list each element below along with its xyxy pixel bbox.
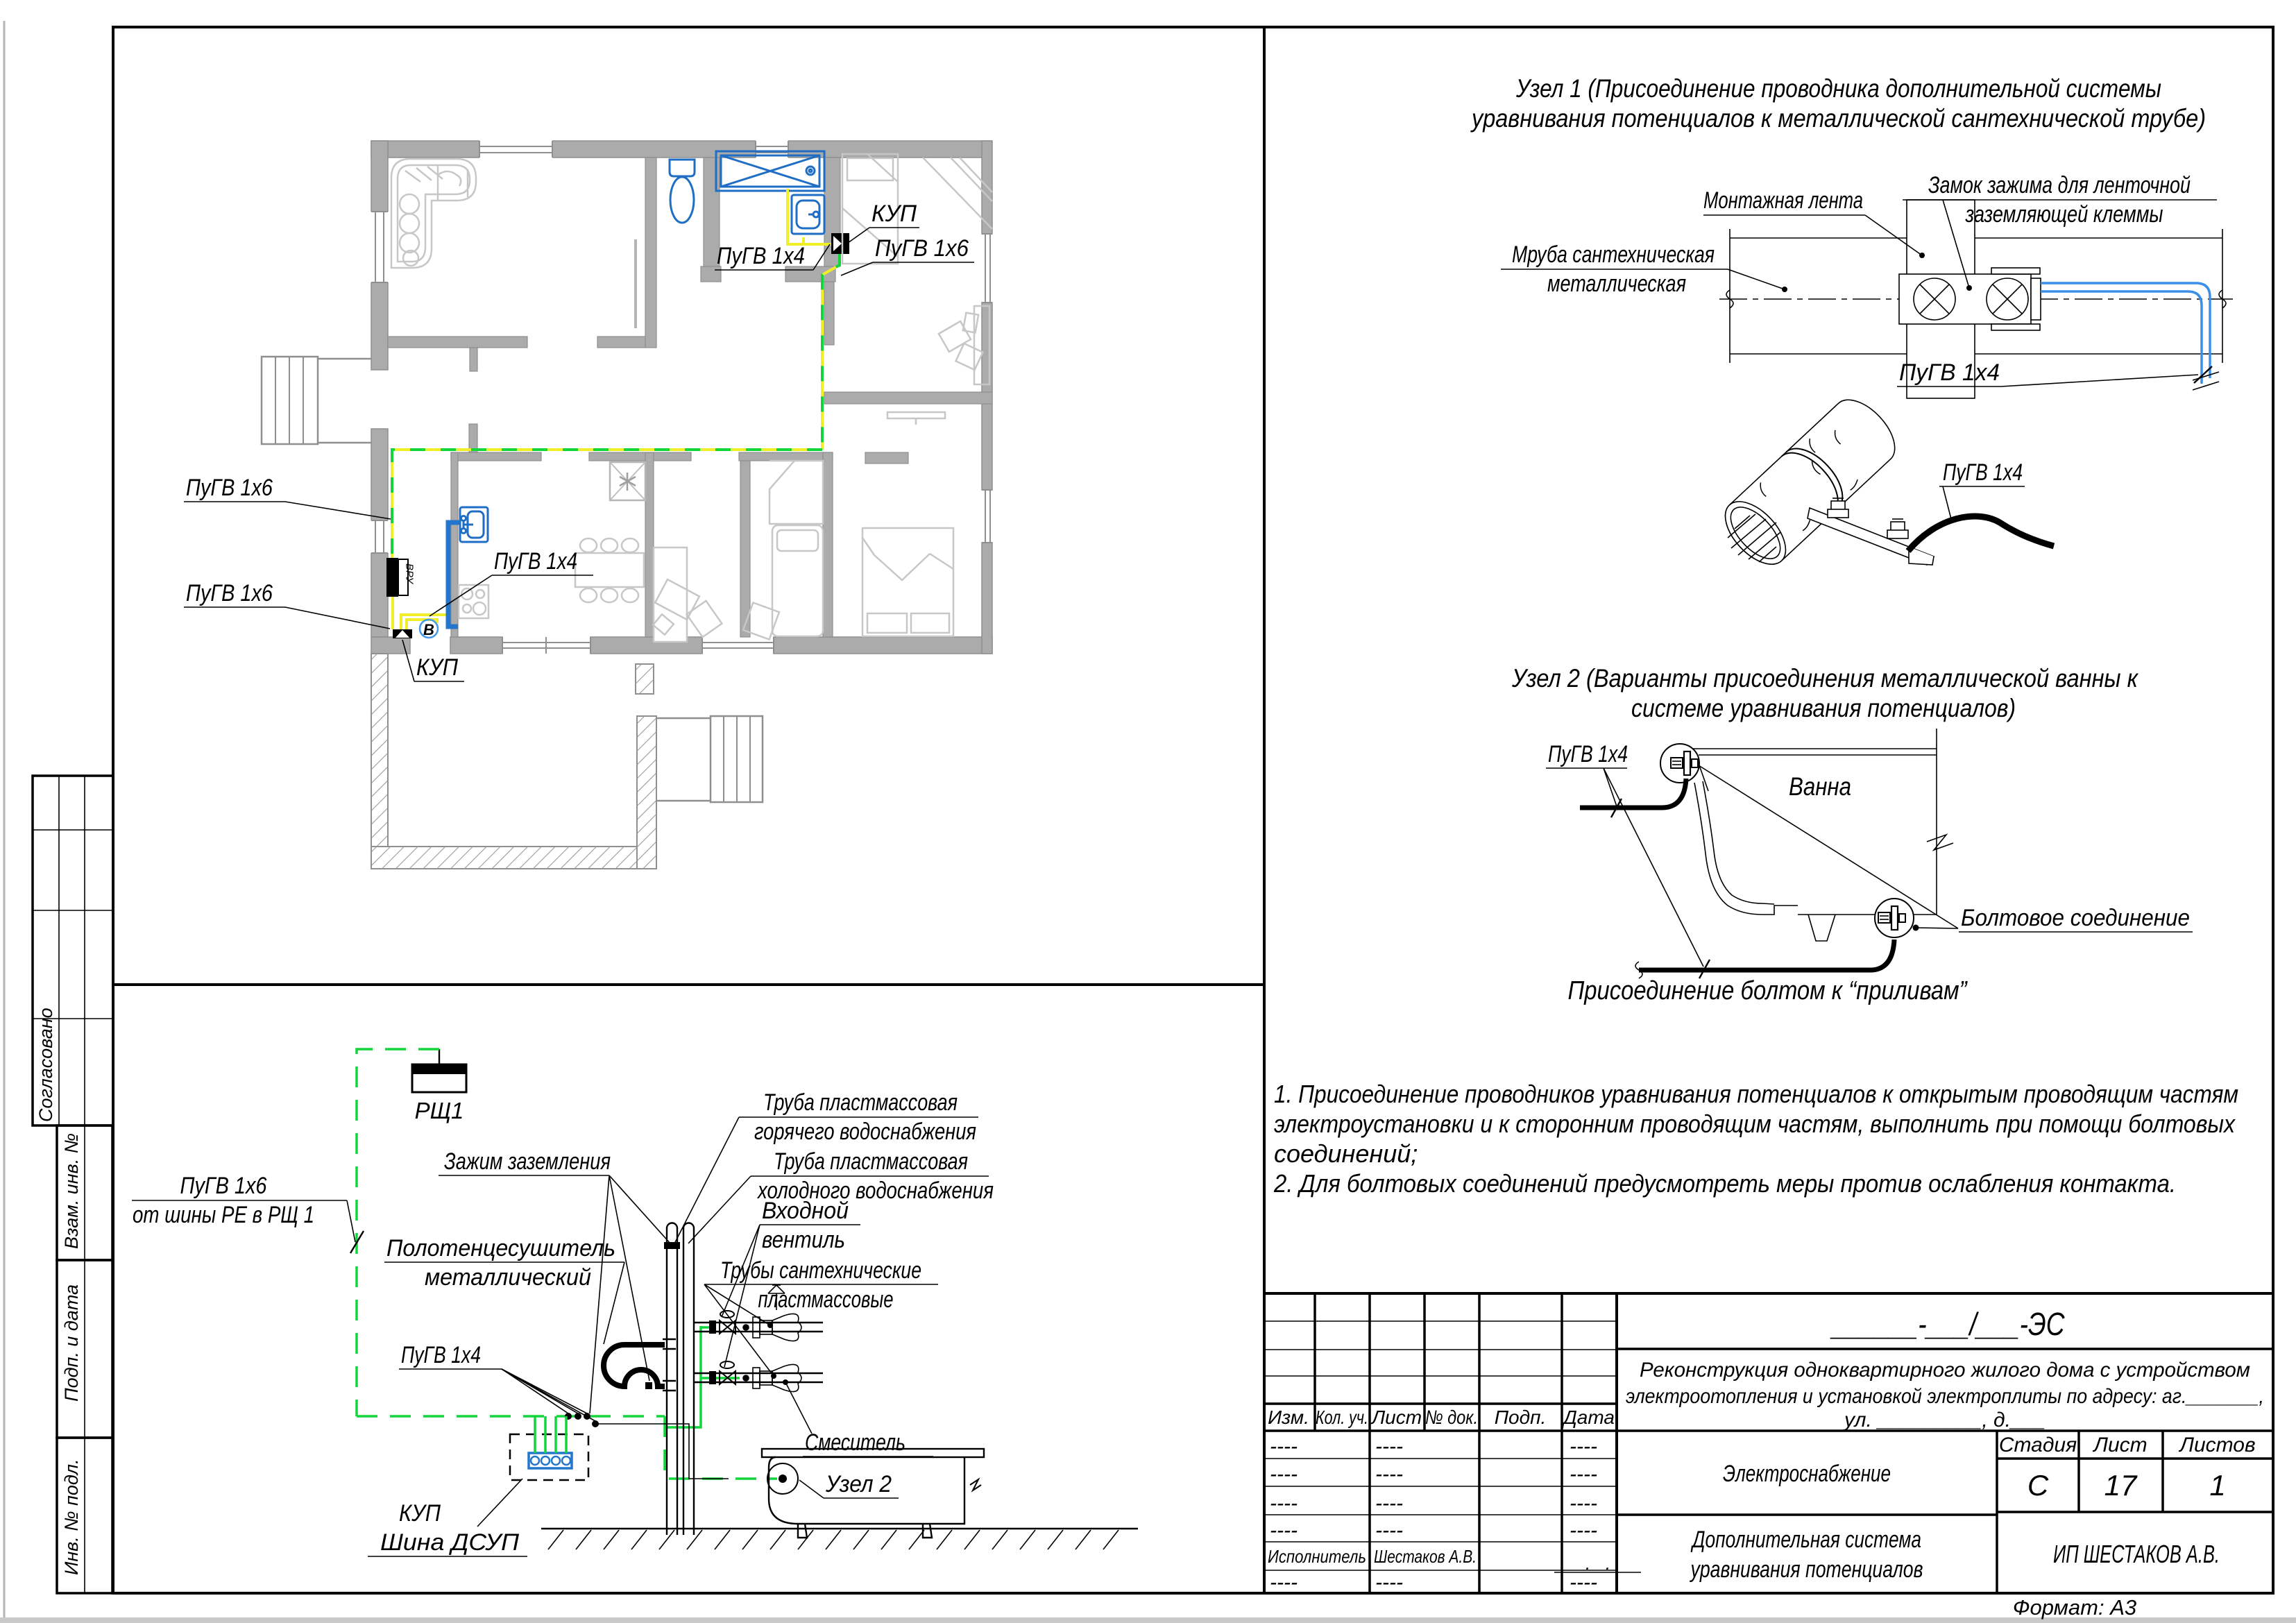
svg-text:1. Присоединение проводников у: 1. Присоединение проводников уравнивания…: [1274, 1080, 2238, 1108]
svg-text:ПуГВ 1х4: ПуГВ 1х4: [1899, 359, 2000, 386]
svg-text:----: ----: [1375, 1519, 1403, 1542]
svg-text:Присоединение болтом к “прилив: Присоединение болтом к “приливам”: [1568, 976, 1968, 1005]
svg-text:----: ----: [1570, 1463, 1597, 1486]
svg-text:системе уравнивания потенциало: системе уравнивания потенциалов): [1631, 694, 2016, 722]
svg-text:----: ----: [1375, 1492, 1403, 1515]
svg-text:Входной: Входной: [762, 1198, 849, 1224]
svg-text:ПуГВ 1х6: ПуГВ 1х6: [180, 1173, 267, 1199]
svg-text:ПуГВ 1х6: ПуГВ 1х6: [875, 235, 969, 262]
svg-text:ВРУ: ВРУ: [404, 563, 416, 584]
svg-text:Стадия: Стадия: [1999, 1434, 2077, 1456]
svg-text:Дата: Дата: [1561, 1407, 1615, 1428]
svg-text:. .: . .: [1585, 1553, 1610, 1574]
svg-text:Электроснабжение: Электроснабжение: [1723, 1461, 1891, 1487]
svg-text:электроотопления и установкой: электроотопления и установкой электропли…: [1626, 1385, 2264, 1408]
svg-text:металлический: металлический: [425, 1264, 591, 1291]
svg-text:----: ----: [1270, 1571, 1298, 1594]
svg-text:Дополнительная система: Дополнительная система: [1690, 1527, 1921, 1553]
svg-text:Труба пластмассовая: Труба пластмассовая: [763, 1089, 958, 1116]
svg-text:ПуГВ 1х6: ПуГВ 1х6: [186, 580, 273, 606]
svg-text:Листов: Листов: [2178, 1434, 2255, 1456]
svg-text:заземляющей клеммы: заземляющей клеммы: [1965, 201, 2163, 228]
svg-text:пластмассовые: пластмассовые: [758, 1286, 894, 1313]
svg-text:Подп. и дата: Подп. и дата: [61, 1284, 82, 1402]
svg-text:Смеситель: Смеситель: [805, 1429, 905, 1456]
svg-text:уравнивания потенциалов к мета: уравнивания потенциалов к металлической …: [1470, 104, 2206, 133]
svg-text:Полотенцесушитель: Полотенцесушитель: [386, 1235, 615, 1261]
svg-text:Труба пластмассовая: Труба пластмассовая: [774, 1148, 968, 1175]
svg-text:Кол. уч.: Кол. уч.: [1316, 1407, 1368, 1428]
svg-text:№ док.: № док.: [1425, 1407, 1478, 1428]
svg-text:----: ----: [1270, 1435, 1298, 1458]
svg-text:уравнивания потенциалов: уравнивания потенциалов: [1690, 1556, 1923, 1583]
svg-text:горячего водоснабжения: горячего водоснабжения: [754, 1119, 976, 1145]
svg-text:ИП ШЕСТАКОВ А.В.: ИП ШЕСТАКОВ А.В.: [2053, 1540, 2220, 1568]
svg-text:ПуГВ 1х4: ПуГВ 1х4: [494, 548, 577, 575]
svg-text:РЩ1: РЩ1: [415, 1098, 464, 1123]
svg-text:Узел 2 (Варианты присоединения: Узел 2 (Варианты присоединения металличе…: [1511, 664, 2138, 692]
svg-text:ПуГВ 1х4: ПуГВ 1х4: [717, 243, 805, 269]
svg-text:Инв. № подл.: Инв. № подл.: [61, 1459, 82, 1575]
svg-text:Исполнитель: Исполнитель: [1268, 1546, 1366, 1567]
svg-text:от шины РЕ в РЩ 1: от шины РЕ в РЩ 1: [133, 1202, 314, 1228]
svg-text:соединений;: соединений;: [1274, 1139, 1418, 1168]
svg-text:----: ----: [1570, 1435, 1597, 1458]
svg-text:Формат: А3: Формат: А3: [2013, 1595, 2136, 1620]
svg-text:ПуГВ 1х6: ПуГВ 1х6: [186, 475, 273, 501]
svg-text:Мруба сантехническая: Мруба сантехническая: [1512, 241, 1715, 268]
svg-text:----: ----: [1375, 1571, 1403, 1594]
svg-text:Подп.: Подп.: [1495, 1407, 1547, 1428]
svg-text:Узел 1 (Присоединение проводни: Узел 1 (Присоединение проводника дополни…: [1515, 74, 2161, 103]
svg-text:КУП: КУП: [871, 201, 917, 227]
svg-text:Взам. инв. №: Взам. инв. №: [61, 1133, 82, 1249]
svg-text:Шина ДСУП: Шина ДСУП: [380, 1529, 519, 1556]
svg-text:Лист: Лист: [2092, 1434, 2147, 1456]
svg-text:Болтовое соединение: Болтовое соединение: [1961, 905, 2190, 931]
svg-text:Ванна: Ванна: [1789, 772, 1851, 801]
svg-text:вентиль: вентиль: [762, 1227, 845, 1253]
svg-text:17: 17: [2104, 1469, 2138, 1502]
svg-text:С: С: [2027, 1469, 2049, 1502]
svg-text:металлическая: металлическая: [1547, 271, 1686, 297]
svg-text:Реконструкция одноквартирного: Реконструкция одноквартирного жилого дом…: [1640, 1359, 2250, 1382]
svg-text:Замок зажима для ленточной: Замок зажима для ленточной: [1928, 172, 2191, 198]
svg-text:ул. _________, д.___: ул. _________, д.___: [1843, 1409, 2046, 1431]
svg-text:КУП: КУП: [399, 1500, 441, 1527]
svg-text:----: ----: [1570, 1519, 1597, 1542]
svg-text:Согласовано: Согласовано: [35, 1008, 56, 1122]
svg-text:----: ----: [1270, 1519, 1298, 1542]
svg-text:----: ----: [1570, 1492, 1597, 1515]
svg-text:Шестаков А.В.: Шестаков А.В.: [1374, 1546, 1477, 1567]
svg-text:2. Для болтовых соединений пре: 2. Для болтовых соединений предусмотреть…: [1273, 1169, 2176, 1198]
svg-text:Зажим заземления: Зажим заземления: [444, 1148, 611, 1175]
svg-text:----: ----: [1375, 1435, 1403, 1458]
svg-text:КУП: КУП: [416, 654, 458, 681]
svg-text:----: ----: [1375, 1463, 1403, 1486]
svg-text:1: 1: [2209, 1469, 2225, 1502]
svg-text:ПуГВ 1х4: ПуГВ 1х4: [1548, 741, 1628, 767]
svg-text:----: ----: [1570, 1571, 1597, 1594]
svg-text:ПуГВ 1х4: ПуГВ 1х4: [401, 1342, 481, 1368]
svg-text:______-___/___-ЭС: ______-___/___-ЭС: [1830, 1306, 2065, 1342]
svg-text:В: В: [423, 621, 434, 638]
svg-text:----: ----: [1270, 1463, 1298, 1486]
svg-text:Изм.: Изм.: [1268, 1407, 1309, 1428]
svg-text:Трубы сантехнические: Трубы сантехнические: [720, 1257, 921, 1284]
svg-text:Монтажная лента: Монтажная лента: [1703, 187, 1863, 214]
svg-text:Узел 2: Узел 2: [825, 1471, 892, 1497]
svg-text:----: ----: [1270, 1492, 1298, 1515]
svg-text:Лист: Лист: [1370, 1407, 1422, 1428]
svg-text:электроустановки и к сторонним: электроустановки и к сторонним проводящи…: [1274, 1110, 2236, 1138]
svg-text:ПуГВ 1х4: ПуГВ 1х4: [1943, 459, 2023, 486]
